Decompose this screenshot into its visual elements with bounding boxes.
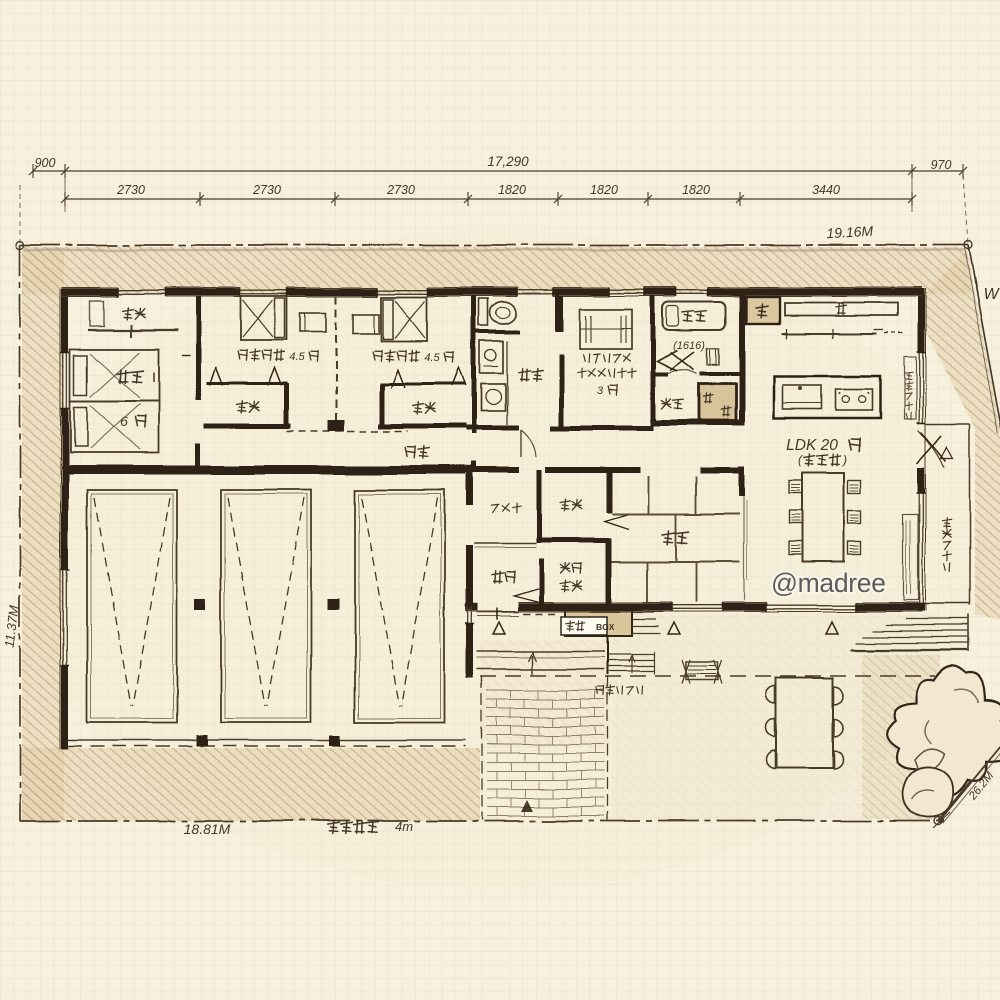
svg-text:2730: 2730 bbox=[252, 183, 281, 197]
svg-text:18.81M: 18.81M bbox=[184, 821, 231, 837]
svg-text:4.5: 4.5 bbox=[424, 352, 440, 364]
svg-text:900: 900 bbox=[35, 156, 56, 170]
svg-text:LDK 20: LDK 20 bbox=[786, 437, 838, 454]
svg-text:970: 970 bbox=[931, 158, 952, 172]
svg-text:17,290: 17,290 bbox=[487, 154, 529, 169]
svg-text:@madree: @madree bbox=[771, 568, 886, 598]
svg-text:W: W bbox=[983, 286, 1000, 303]
svg-text:1820: 1820 bbox=[682, 183, 710, 197]
svg-text:2730: 2730 bbox=[386, 183, 415, 197]
svg-text:19.16M: 19.16M bbox=[826, 223, 874, 241]
svg-text:(1616): (1616) bbox=[673, 340, 705, 352]
svg-text:6: 6 bbox=[120, 413, 128, 429]
svg-text:BOX: BOX bbox=[596, 622, 615, 632]
svg-text:3: 3 bbox=[597, 385, 604, 397]
svg-text:1820: 1820 bbox=[498, 183, 526, 197]
svg-text:3440: 3440 bbox=[812, 183, 840, 197]
svg-text:4m: 4m bbox=[395, 819, 413, 834]
svg-text:1820: 1820 bbox=[590, 183, 618, 197]
svg-text:4.5: 4.5 bbox=[289, 351, 305, 363]
svg-text:2730: 2730 bbox=[116, 183, 145, 197]
